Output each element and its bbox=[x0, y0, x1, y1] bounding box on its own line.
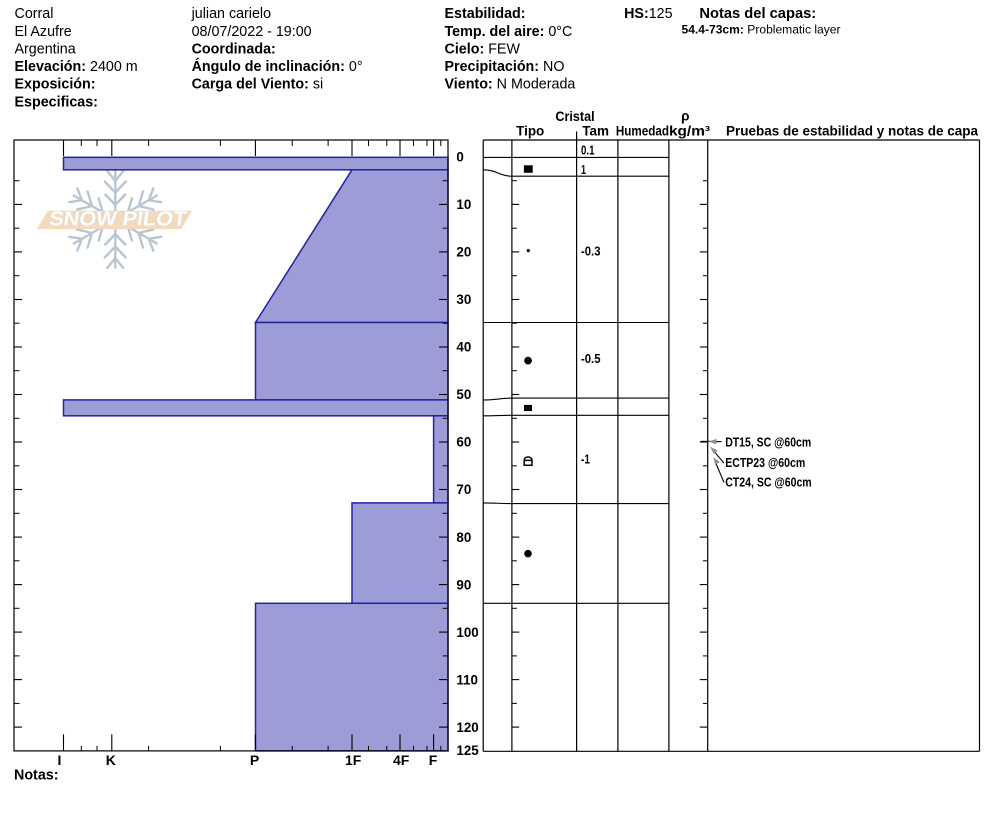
svg-text:Coordinada:: Coordinada: bbox=[192, 41, 276, 57]
svg-text:CT24, SC @60cm: CT24, SC @60cm bbox=[725, 476, 812, 490]
svg-text:Cristal: Cristal bbox=[555, 109, 594, 124]
svg-text:Especificas:: Especificas: bbox=[15, 94, 98, 110]
svg-text:60: 60 bbox=[456, 435, 471, 450]
svg-text:110: 110 bbox=[456, 672, 478, 687]
svg-text:120: 120 bbox=[456, 720, 478, 735]
svg-text:Estabilidad:: Estabilidad: bbox=[445, 6, 526, 22]
svg-text:Humedad: Humedad bbox=[616, 124, 669, 139]
svg-text:70: 70 bbox=[456, 482, 471, 497]
svg-text:30: 30 bbox=[456, 292, 471, 307]
svg-text:Tipo: Tipo bbox=[516, 124, 544, 139]
svg-text:-0.5: -0.5 bbox=[581, 352, 601, 366]
svg-text:julian carielo: julian carielo bbox=[191, 6, 272, 22]
svg-text:ECTP23 @60cm: ECTP23 @60cm bbox=[725, 456, 805, 470]
svg-text:90: 90 bbox=[456, 577, 471, 592]
svg-text:ρ: ρ bbox=[681, 108, 689, 123]
svg-text:P: P bbox=[250, 752, 259, 768]
svg-text:Carga del Viento: si: Carga del Viento: si bbox=[192, 77, 324, 93]
svg-text:0: 0 bbox=[456, 150, 463, 165]
svg-text:HS:125: HS:125 bbox=[624, 6, 673, 22]
svg-text:Argentina: Argentina bbox=[15, 41, 76, 57]
svg-text:Viento: N Moderada: Viento: N Moderada bbox=[445, 77, 576, 93]
svg-text:Ángulo de inclinación: 0°: Ángulo de inclinación: 0° bbox=[192, 58, 363, 75]
svg-text:80: 80 bbox=[456, 530, 471, 545]
svg-text:Temp. del aire: 0°C: Temp. del aire: 0°C bbox=[445, 24, 573, 40]
svg-text:-1: -1 bbox=[581, 452, 590, 466]
svg-text:DT15, SC @60cm: DT15, SC @60cm bbox=[725, 435, 811, 449]
svg-text:Exposición:: Exposición: bbox=[15, 77, 96, 93]
svg-text:54.4-73cm:: 54.4-73cm: bbox=[682, 23, 744, 37]
svg-text:Pruebas de estabilidad y notas: Pruebas de estabilidad y notas de capa bbox=[726, 124, 978, 139]
svg-text:I: I bbox=[58, 752, 62, 768]
svg-text:-0.3: -0.3 bbox=[581, 244, 601, 258]
svg-text:Corral: Corral bbox=[15, 6, 54, 22]
svg-text:1: 1 bbox=[581, 163, 586, 177]
svg-text:El Azufre: El Azufre bbox=[15, 24, 72, 40]
svg-text:Problematic layer: Problematic layer bbox=[747, 23, 840, 37]
svg-text:0.1: 0.1 bbox=[581, 144, 595, 158]
svg-text:50: 50 bbox=[456, 387, 471, 402]
svg-text:125: 125 bbox=[456, 743, 479, 758]
svg-text:Elevación: 2400 m: Elevación: 2400 m bbox=[15, 59, 138, 75]
svg-text:Notas:: Notas: bbox=[14, 768, 58, 784]
svg-text:40: 40 bbox=[456, 340, 471, 355]
svg-text:20: 20 bbox=[456, 245, 471, 260]
svg-text:100: 100 bbox=[456, 625, 478, 640]
svg-text:4F: 4F bbox=[393, 752, 410, 768]
svg-text:F: F bbox=[429, 752, 438, 768]
svg-text:Cielo: FEW: Cielo: FEW bbox=[445, 41, 521, 57]
svg-text:SNOW PILOT: SNOW PILOT bbox=[48, 207, 189, 230]
svg-text:10: 10 bbox=[456, 197, 471, 212]
svg-text:Tam: Tam bbox=[582, 124, 609, 139]
svg-text:kg/m³: kg/m³ bbox=[669, 124, 711, 139]
svg-text:1F: 1F bbox=[345, 752, 362, 768]
svg-text:08/07/2022 - 19:00: 08/07/2022 - 19:00 bbox=[192, 24, 312, 40]
svg-text:K: K bbox=[106, 752, 116, 768]
svg-text:Notas del capas:: Notas del capas: bbox=[699, 6, 816, 22]
svg-text:Precipitación: NO: Precipitación: NO bbox=[445, 59, 565, 75]
